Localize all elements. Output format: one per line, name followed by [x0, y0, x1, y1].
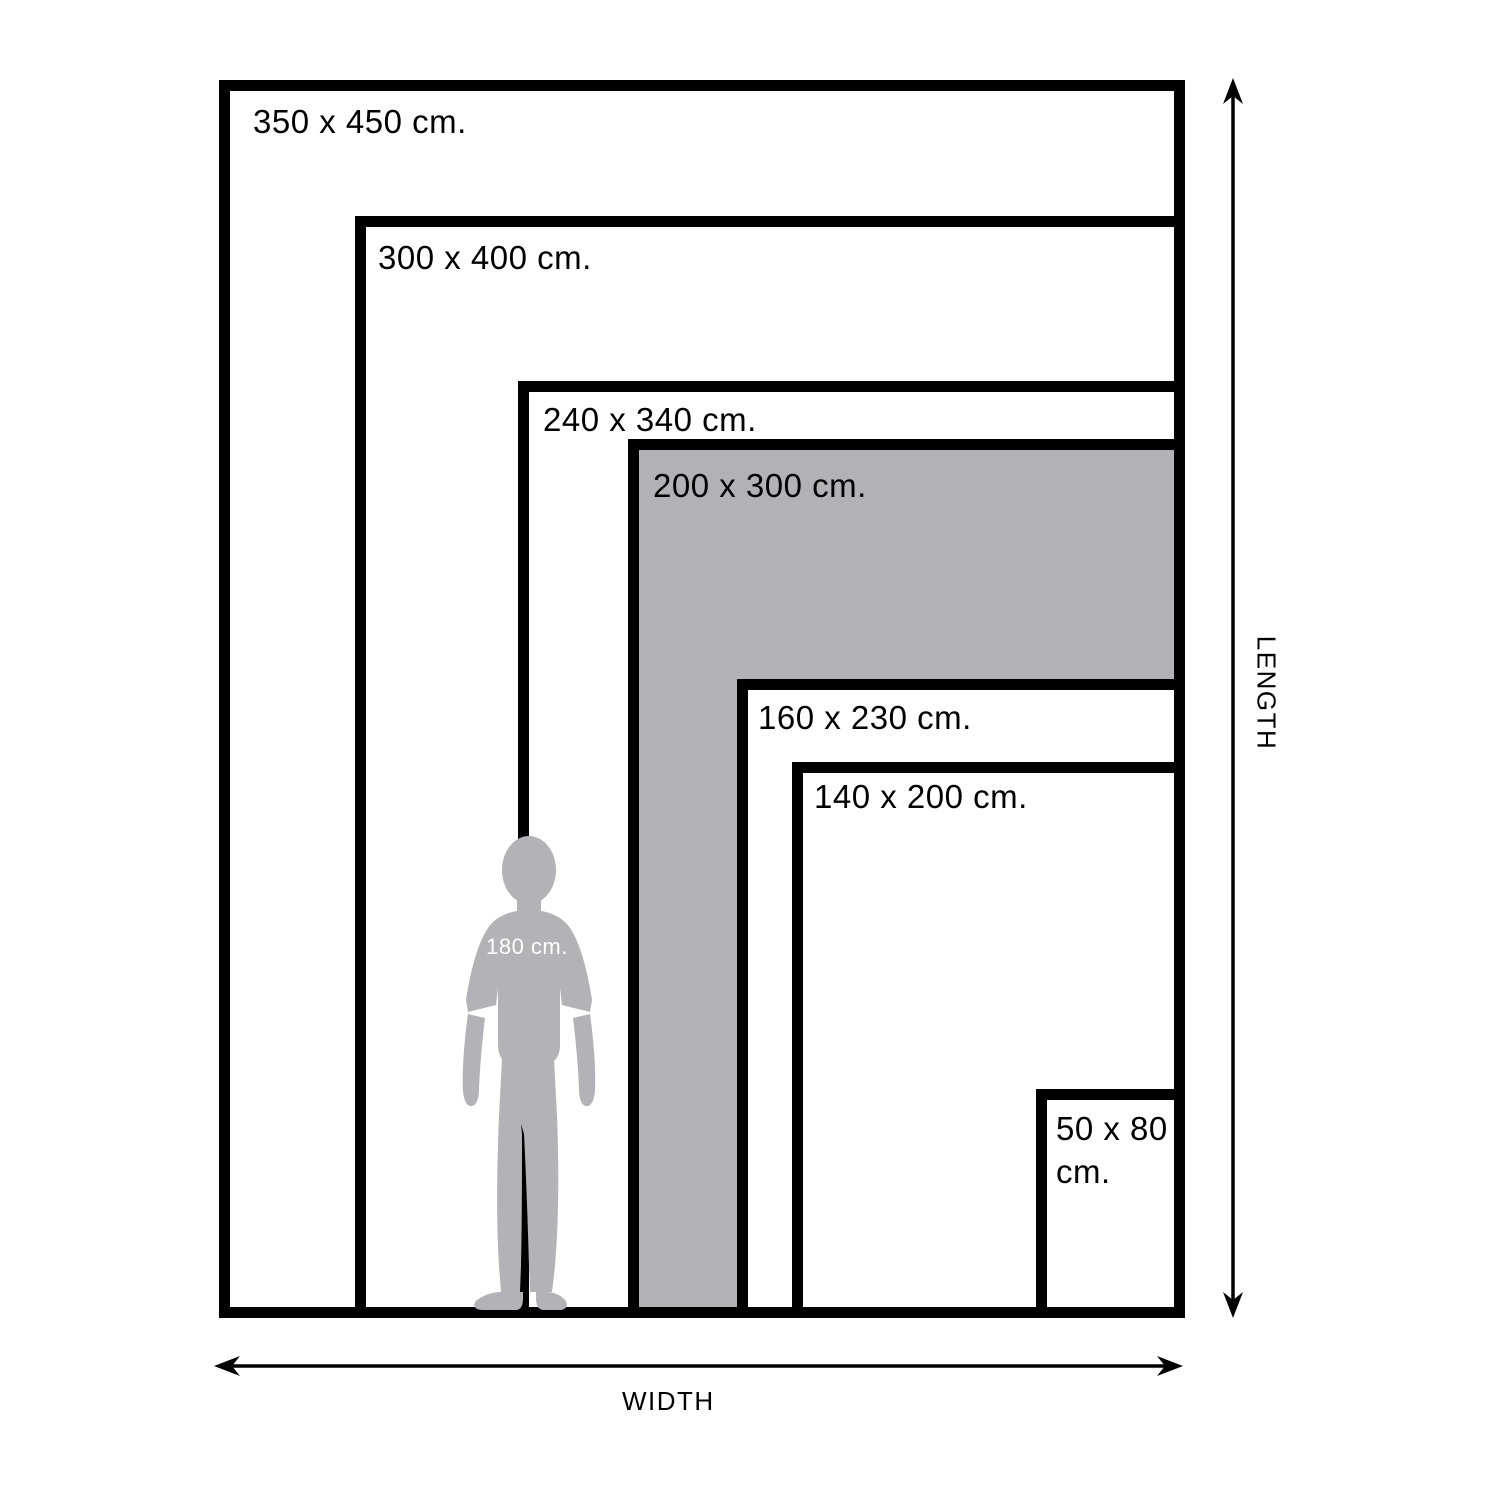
person-torso	[466, 910, 592, 1063]
size-label-240x340: 240 x 340 cm.	[543, 399, 757, 442]
size-label-50x80: 50 x 80 cm.	[1056, 1108, 1196, 1194]
size-label-160x230: 160 x 230 cm.	[758, 697, 972, 740]
width-axis-label: WIDTH	[622, 1386, 715, 1417]
size-label-350x450: 350 x 450 cm.	[253, 101, 467, 144]
size-label-300x400: 300 x 400 cm.	[378, 237, 592, 280]
size-label-200x300: 200 x 300 cm.	[653, 465, 867, 508]
width-arrow	[214, 1356, 1183, 1376]
person-left-arm	[463, 1014, 485, 1106]
person-right-shoe	[536, 1292, 567, 1310]
rug-size-chart: 350 x 450 cm. 300 x 400 cm. 240 x 340 cm…	[0, 0, 1500, 1500]
length-axis-label: LENGTH	[1251, 636, 1282, 750]
person-left-shoe	[474, 1292, 523, 1310]
person-height-label: 180 cm.	[462, 934, 592, 960]
person-silhouette	[452, 834, 602, 1312]
person-right-arm	[573, 1014, 595, 1106]
size-label-140x200: 140 x 200 cm.	[814, 776, 1028, 819]
length-arrow	[1223, 78, 1243, 1318]
person-head	[502, 836, 556, 904]
person-legs	[497, 1059, 558, 1292]
